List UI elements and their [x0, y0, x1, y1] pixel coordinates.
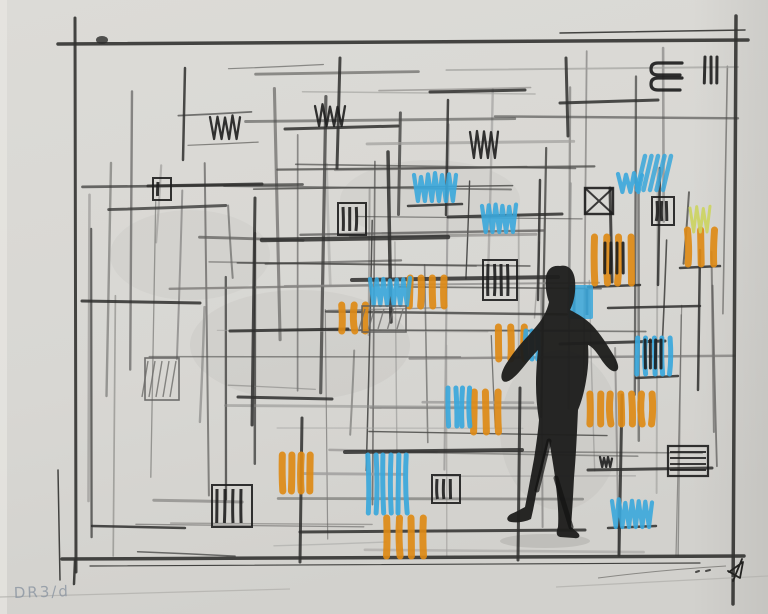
artist-inscription: DR3/d — [14, 582, 71, 602]
sketch-canvas: DR3/d — [0, 0, 768, 614]
artwork-photo: DR3/d — [0, 0, 768, 614]
dark-blob-mark — [96, 36, 108, 44]
orange-stripes-mark — [590, 394, 653, 424]
